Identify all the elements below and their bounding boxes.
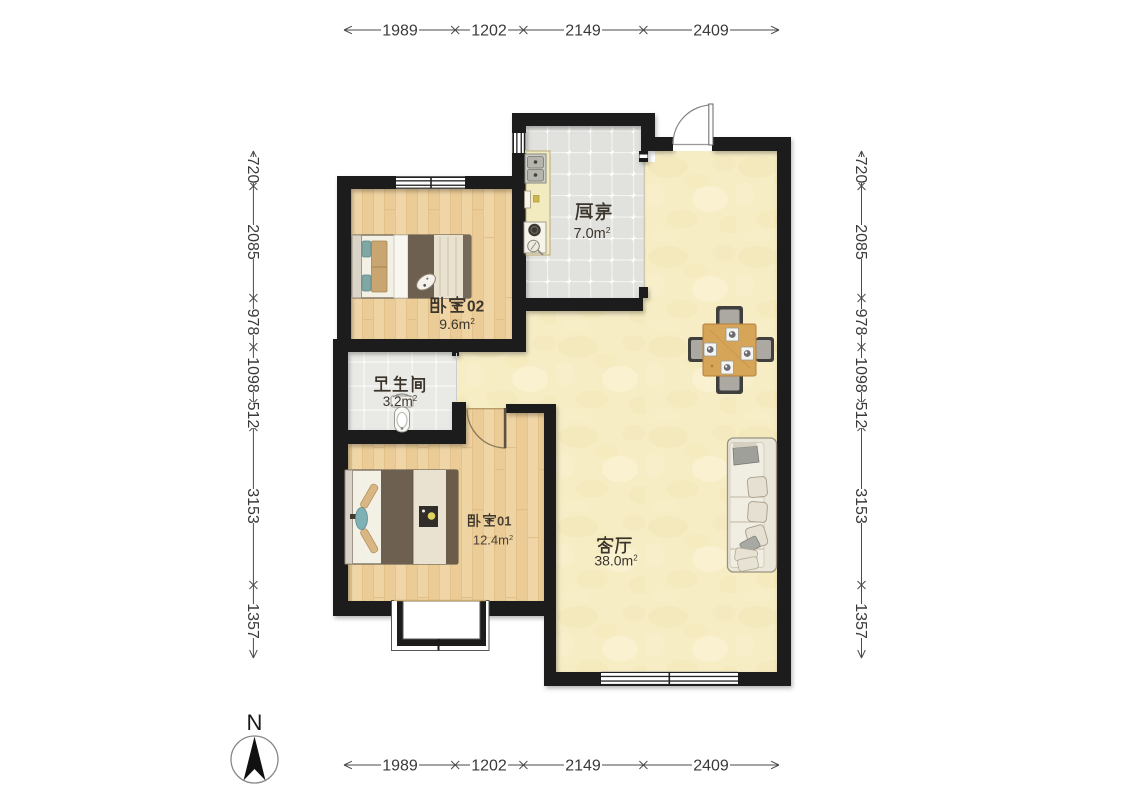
svg-text:978: 978 — [244, 309, 261, 336]
svg-text:02: 02 — [467, 299, 484, 316]
svg-text:38.0m2: 38.0m2 — [594, 553, 638, 569]
svg-text:12.4m2: 12.4m2 — [473, 533, 513, 548]
svg-text:01: 01 — [497, 514, 511, 529]
svg-text:2409: 2409 — [693, 23, 729, 40]
svg-text:2085: 2085 — [244, 224, 261, 260]
svg-text:1098: 1098 — [852, 357, 869, 393]
svg-text:720: 720 — [244, 157, 261, 184]
svg-text:1202: 1202 — [471, 23, 507, 40]
svg-text:3153: 3153 — [852, 488, 869, 524]
svg-text:7.0m2: 7.0m2 — [574, 225, 611, 242]
svg-text:2149: 2149 — [565, 758, 601, 775]
svg-text:2149: 2149 — [565, 23, 601, 40]
svg-text:1357: 1357 — [852, 603, 869, 639]
svg-text:1098: 1098 — [244, 357, 261, 393]
svg-text:1989: 1989 — [382, 758, 418, 775]
svg-text:1202: 1202 — [471, 758, 507, 775]
svg-text:2085: 2085 — [852, 224, 869, 260]
svg-text:512: 512 — [244, 402, 261, 429]
svg-text:3153: 3153 — [244, 488, 261, 524]
svg-text:1989: 1989 — [382, 23, 418, 40]
svg-text:N: N — [247, 710, 263, 735]
svg-text:3.2m2: 3.2m2 — [383, 394, 418, 409]
svg-text:512: 512 — [852, 402, 869, 429]
svg-text:978: 978 — [852, 309, 869, 336]
svg-text:9.6m2: 9.6m2 — [439, 316, 475, 332]
svg-text:1357: 1357 — [244, 603, 261, 639]
svg-text:2409: 2409 — [693, 758, 729, 775]
svg-text:720: 720 — [852, 157, 869, 184]
